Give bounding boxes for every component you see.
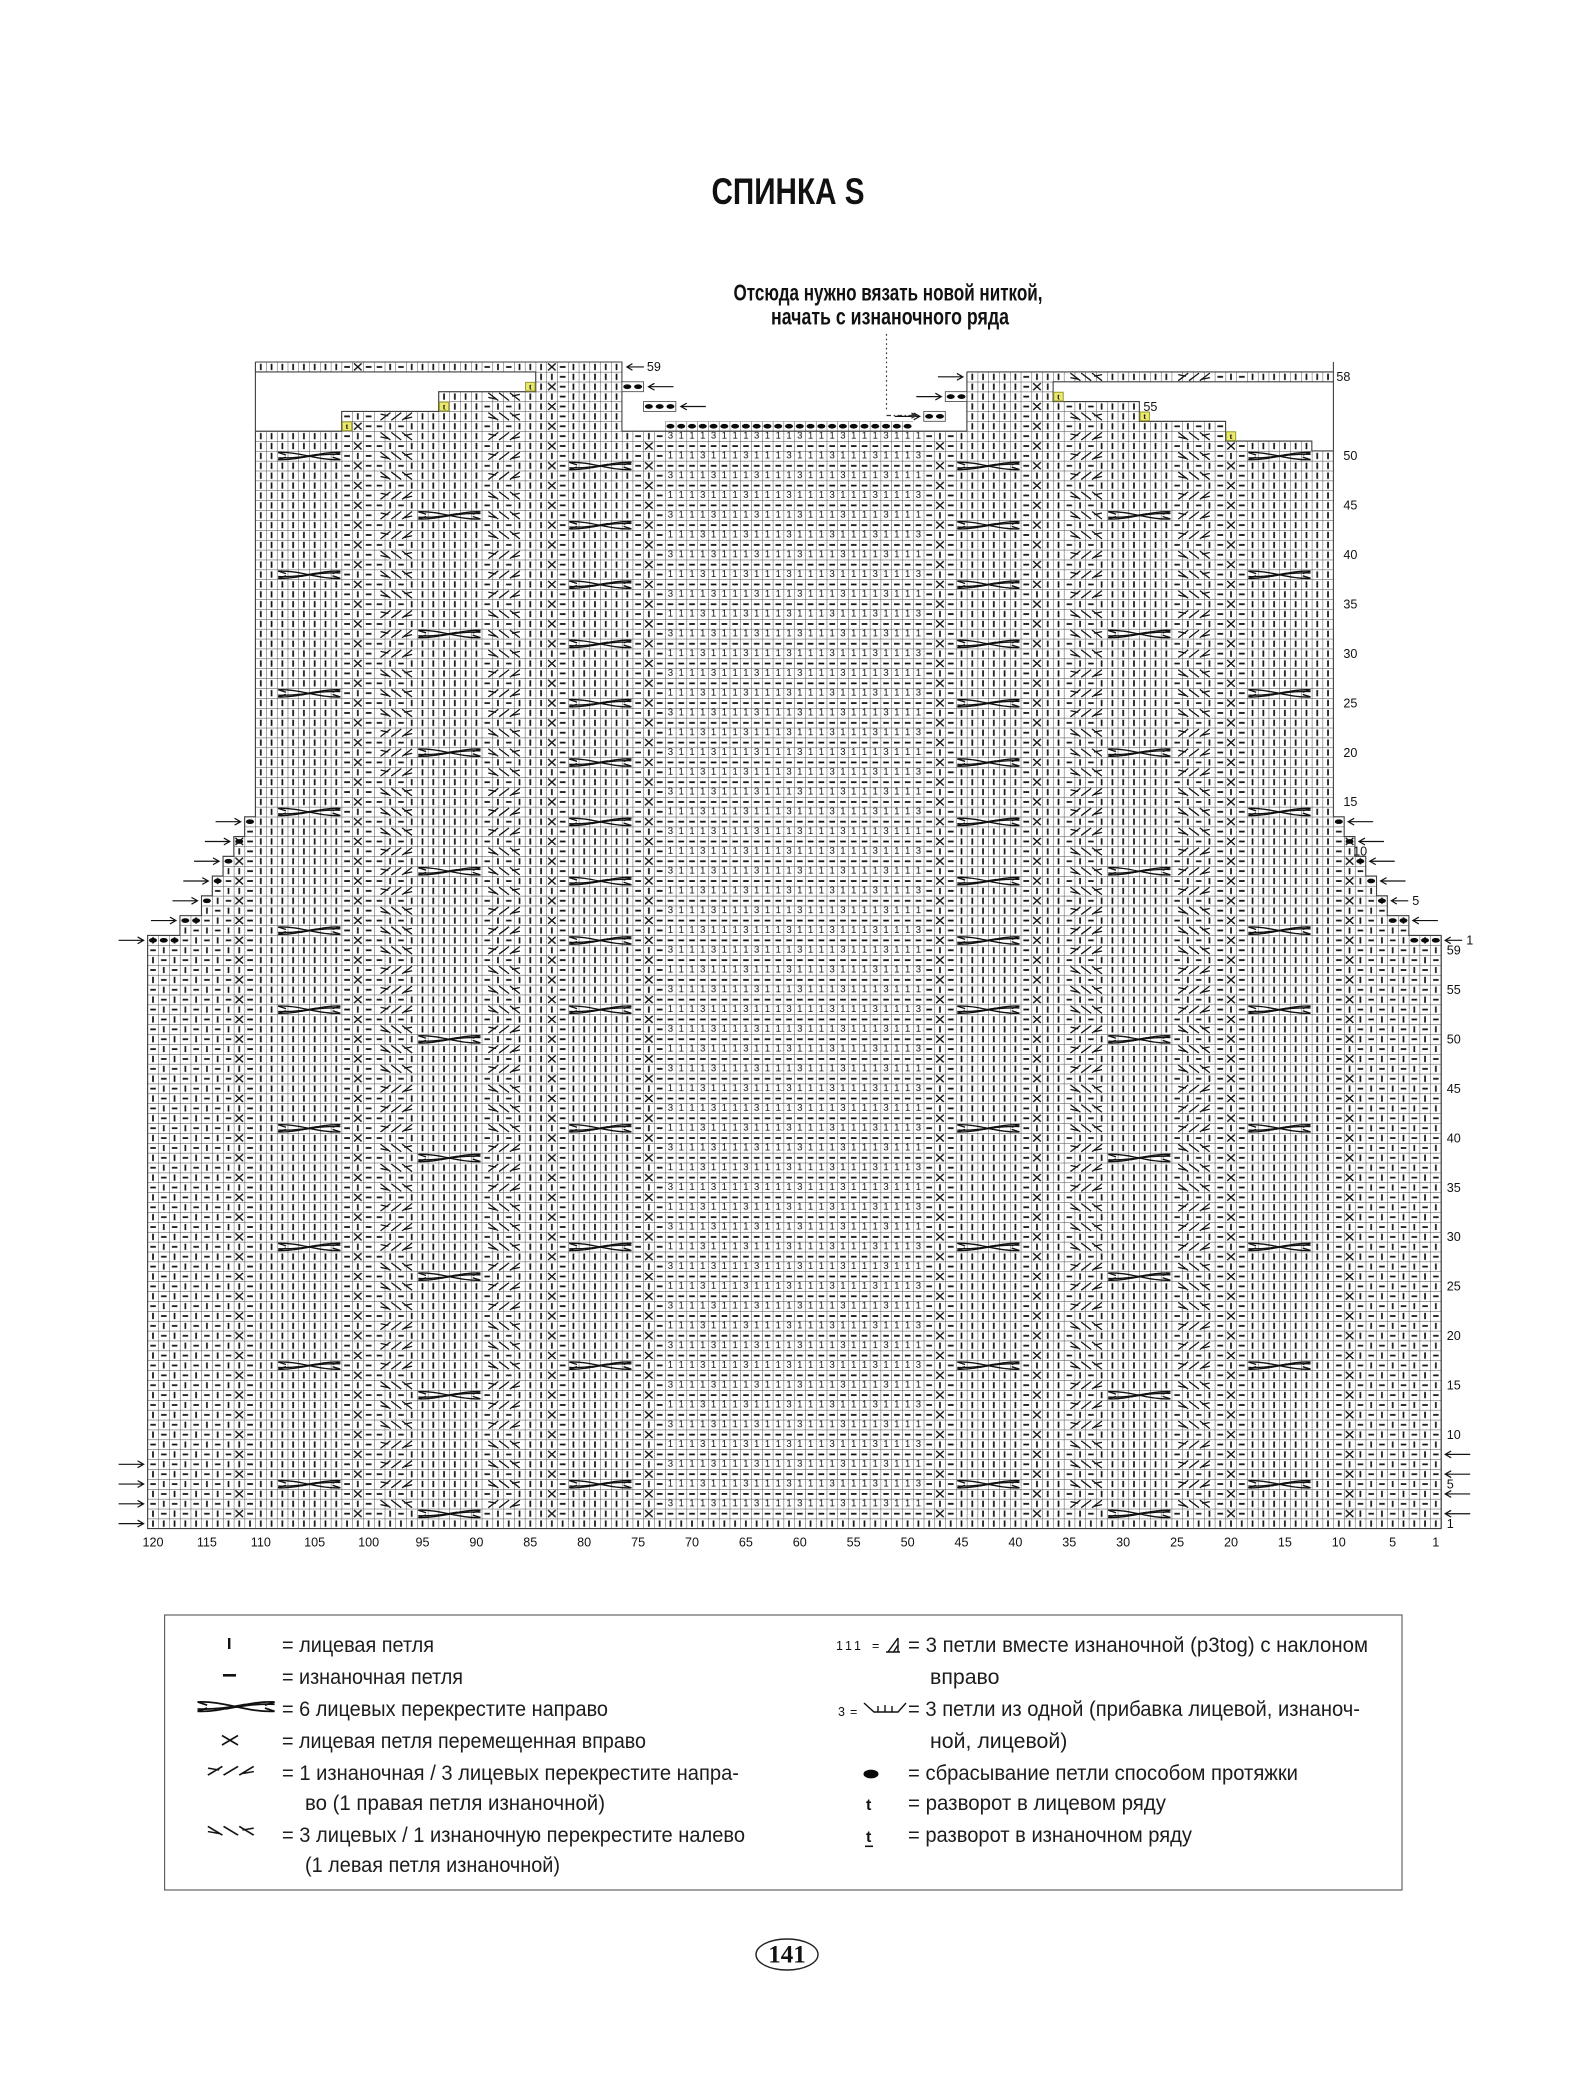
svg-text:111: 111: [836, 1639, 864, 1653]
svg-text:10: 10: [1447, 1428, 1461, 1442]
svg-text:= сбрасывание петли способом п: = сбрасывание петли способом протяжки: [908, 1761, 1298, 1785]
svg-text:t: t: [529, 382, 532, 392]
svg-text:35: 35: [1447, 1181, 1461, 1195]
svg-text:120: 120: [142, 1536, 163, 1550]
svg-text:t: t: [443, 401, 446, 411]
svg-text:t: t: [1230, 431, 1233, 441]
svg-text:= изнаночная петля: = изнаночная петля: [282, 1665, 463, 1689]
svg-text:45: 45: [1343, 499, 1357, 513]
svg-text:70: 70: [685, 1536, 699, 1550]
svg-text:5: 5: [1412, 894, 1419, 908]
svg-text:t: t: [866, 1829, 872, 1846]
svg-text:50: 50: [1343, 449, 1357, 463]
svg-text:СПИНКА S: СПИНКА S: [712, 171, 865, 212]
svg-text:вправо: вправо: [930, 1665, 999, 1689]
svg-text:40: 40: [1447, 1131, 1461, 1145]
svg-text:= 1 изнаночная / 3 лицевых пер: = 1 изнаночная / 3 лицевых перекрестите …: [282, 1761, 739, 1785]
svg-text:50: 50: [1447, 1032, 1461, 1046]
svg-text:115: 115: [197, 1536, 217, 1550]
svg-text:40: 40: [1008, 1536, 1022, 1550]
svg-text:t: t: [346, 421, 349, 431]
svg-text:110: 110: [251, 1536, 271, 1550]
svg-text:= 3 петли вместе изнаночной (p: = 3 петли вместе изнаночной (p3tog) с на…: [908, 1633, 1368, 1657]
svg-text:35: 35: [1062, 1536, 1076, 1550]
svg-text:59: 59: [1447, 944, 1461, 958]
svg-text:= разворот в лицевом ряду: = разворот в лицевом ряду: [908, 1791, 1166, 1815]
svg-text:95: 95: [415, 1536, 429, 1550]
svg-text:= разворот в изнаночном ряду: = разворот в изнаночном ряду: [908, 1823, 1192, 1847]
svg-text:105: 105: [304, 1536, 325, 1550]
svg-text:80: 80: [577, 1536, 591, 1550]
svg-text:= лицевая петля перемещенная в: = лицевая петля перемещенная вправо: [282, 1729, 646, 1753]
svg-text:5: 5: [1389, 1536, 1396, 1550]
svg-text:55: 55: [847, 1536, 861, 1550]
svg-text:= 3 лицевых / 1 изнаночную пер: = 3 лицевых / 1 изнаночную перекрестите …: [282, 1823, 745, 1847]
svg-text:59: 59: [647, 360, 661, 374]
svg-text:15: 15: [1447, 1379, 1461, 1393]
svg-text:=: =: [872, 1639, 879, 1653]
svg-text:ной, лицевой): ной, лицевой): [930, 1729, 1067, 1753]
svg-text:начать с изнаночного ряда: начать с изнаночного ряда: [771, 304, 1010, 330]
svg-text:Отсюда нужно вязать новой нитк: Отсюда нужно вязать новой ниткой,: [734, 280, 1043, 306]
svg-text:75: 75: [631, 1536, 645, 1550]
svg-text:20: 20: [1224, 1536, 1238, 1550]
svg-text:30: 30: [1447, 1230, 1461, 1244]
svg-text:90: 90: [469, 1536, 483, 1550]
svg-text:141: 141: [768, 1942, 806, 1969]
svg-text:20: 20: [1447, 1329, 1461, 1343]
svg-text:15: 15: [1343, 795, 1357, 809]
svg-text:3: 3: [838, 1705, 845, 1719]
svg-text:20: 20: [1343, 746, 1357, 760]
svg-text:(1 левая петля изнаночной): (1 левая петля изнаночной): [305, 1853, 560, 1877]
svg-text:25: 25: [1447, 1280, 1461, 1294]
svg-text:1: 1: [1447, 1517, 1454, 1531]
svg-text:t: t: [866, 1797, 872, 1814]
svg-text:45: 45: [1447, 1082, 1461, 1096]
svg-text:= лицевая петля: = лицевая петля: [282, 1633, 434, 1657]
svg-text:=: =: [850, 1705, 857, 1719]
svg-text:10: 10: [1332, 1536, 1346, 1550]
svg-text:t: t: [1057, 391, 1060, 401]
svg-text:25: 25: [1343, 696, 1357, 710]
svg-text:85: 85: [523, 1536, 537, 1550]
svg-text:15: 15: [1278, 1536, 1292, 1550]
svg-text:50: 50: [901, 1536, 915, 1550]
svg-text:35: 35: [1343, 598, 1357, 612]
svg-text:58: 58: [1336, 370, 1350, 384]
svg-text:25: 25: [1170, 1536, 1184, 1550]
svg-text:55: 55: [1143, 400, 1157, 414]
svg-text:30: 30: [1343, 647, 1357, 661]
svg-text:65: 65: [739, 1536, 753, 1550]
svg-text:5: 5: [1447, 1477, 1454, 1491]
svg-text:= 3 петли из одной (прибавка л: = 3 петли из одной (прибавка лицевой, из…: [908, 1697, 1360, 1721]
svg-text:40: 40: [1343, 548, 1357, 562]
svg-text:1: 1: [1432, 1536, 1439, 1550]
svg-text:10: 10: [1353, 845, 1367, 859]
svg-text:30: 30: [1116, 1536, 1130, 1550]
svg-text:100: 100: [358, 1536, 379, 1550]
svg-text:45: 45: [954, 1536, 968, 1550]
svg-text:1: 1: [1466, 934, 1473, 948]
svg-text:60: 60: [793, 1536, 807, 1550]
svg-text:= 6 лицевых перекрестите напра: = 6 лицевых перекрестите направо: [282, 1697, 608, 1721]
svg-text:55: 55: [1447, 983, 1461, 997]
svg-text:во (1 правая петля изнаночной): во (1 правая петля изнаночной): [305, 1791, 605, 1815]
